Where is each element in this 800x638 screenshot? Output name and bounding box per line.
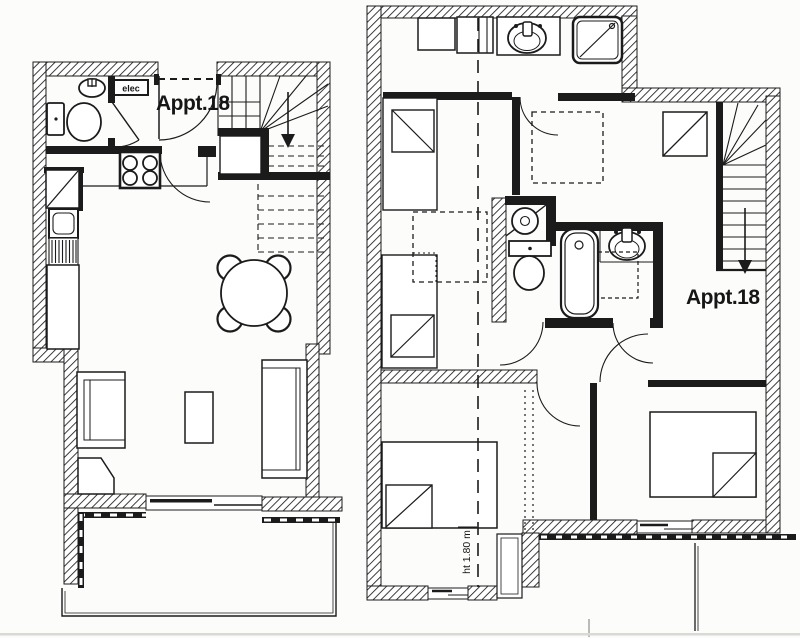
wc-door-leaf bbox=[112, 102, 139, 140]
wall bbox=[492, 198, 506, 322]
wall bbox=[33, 62, 158, 76]
height-note-label: ht 1.80 m bbox=[461, 530, 473, 574]
faucet-icon bbox=[523, 22, 532, 36]
bedroom-right bbox=[637, 412, 756, 533]
bedroom-door-arc bbox=[600, 334, 648, 382]
under-eaves-storage-dashed bbox=[532, 112, 603, 183]
wall bbox=[33, 62, 46, 360]
wall bbox=[692, 520, 766, 533]
balcony-left bbox=[62, 496, 340, 616]
children-bedroom bbox=[382, 98, 487, 368]
staircase-left bbox=[218, 76, 328, 254]
stair-down-arrow-icon bbox=[738, 260, 752, 274]
counter-cabinet bbox=[47, 265, 79, 349]
scan-edge-artifact bbox=[0, 633, 800, 636]
bathtub-icon bbox=[561, 229, 598, 318]
left-plan: elec bbox=[33, 62, 342, 616]
scanned-plan-sheet: elec bbox=[0, 0, 800, 638]
coffee-table bbox=[185, 392, 213, 443]
balcony-right bbox=[497, 534, 796, 637]
wall bbox=[64, 494, 146, 508]
stair-closet bbox=[220, 136, 261, 174]
toilet-icon bbox=[514, 256, 544, 290]
left-plan-label: Appt.18 bbox=[156, 92, 230, 115]
elec-label: elec bbox=[122, 84, 140, 94]
wall bbox=[468, 586, 497, 600]
wall bbox=[306, 344, 319, 510]
sliding-window bbox=[146, 496, 262, 510]
wall bbox=[317, 62, 330, 354]
door-swing-arc bbox=[520, 97, 558, 135]
faucet-icon bbox=[622, 228, 632, 242]
wall bbox=[367, 6, 381, 600]
toilet-icon bbox=[67, 103, 101, 141]
wall bbox=[766, 96, 780, 533]
wall bbox=[622, 88, 780, 102]
floor-plan-canvas: elec bbox=[0, 0, 800, 638]
window bbox=[637, 521, 692, 533]
bedroom-door-arc bbox=[537, 383, 580, 426]
dining-table-icon bbox=[221, 260, 287, 326]
wall bbox=[523, 520, 637, 534]
wall bbox=[262, 497, 342, 511]
window bbox=[428, 588, 468, 599]
kitchen bbox=[46, 152, 210, 349]
right-plan: ht 1.80 m Appt.18 bbox=[367, 6, 796, 637]
cabinet bbox=[418, 18, 455, 50]
wc-room-upper bbox=[500, 205, 551, 365]
bathroom bbox=[561, 228, 653, 363]
balcony-railing bbox=[78, 512, 340, 588]
low-partition-dotted bbox=[525, 390, 533, 530]
wall bbox=[64, 348, 78, 584]
living-room bbox=[77, 256, 307, 495]
wall bbox=[381, 370, 537, 383]
wardrobe-cells bbox=[457, 17, 493, 53]
kitchen-door-arc bbox=[160, 152, 210, 202]
wc-door-arc bbox=[500, 322, 543, 365]
wall bbox=[622, 16, 637, 90]
armchair bbox=[78, 458, 114, 494]
wall bbox=[217, 62, 330, 76]
wall bbox=[367, 586, 428, 600]
drainboard-icon bbox=[49, 238, 78, 265]
balcony-outline bbox=[62, 522, 336, 616]
bedroom-left bbox=[382, 383, 580, 599]
right-plan-label: Appt.18 bbox=[686, 286, 760, 309]
wall bbox=[522, 533, 539, 587]
